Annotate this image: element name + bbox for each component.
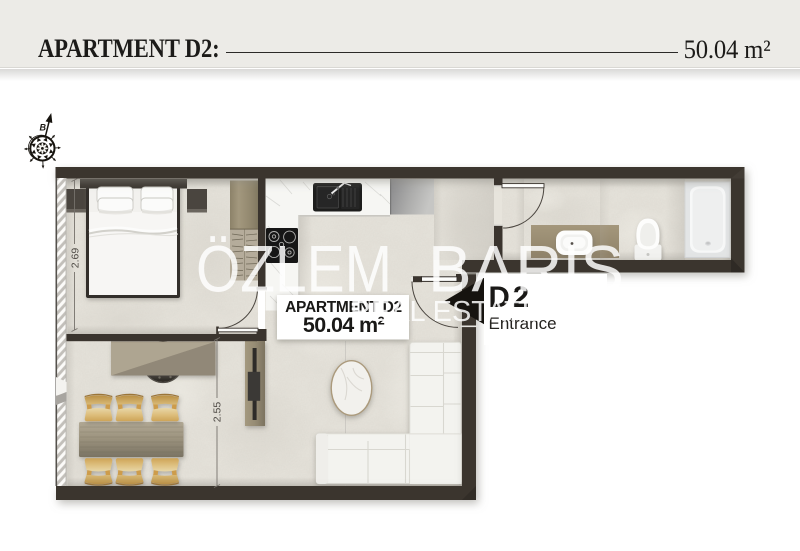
- svg-text:BARIS: BARIS: [428, 232, 624, 306]
- svg-text:ÖZLEM: ÖZLEM: [196, 232, 392, 306]
- svg-text:2.55: 2.55: [212, 402, 224, 423]
- svg-text:B: B: [40, 122, 47, 132]
- svg-text:REAL ESTATE: REAL ESTATE: [350, 296, 541, 328]
- svg-text:2.69: 2.69: [70, 248, 82, 269]
